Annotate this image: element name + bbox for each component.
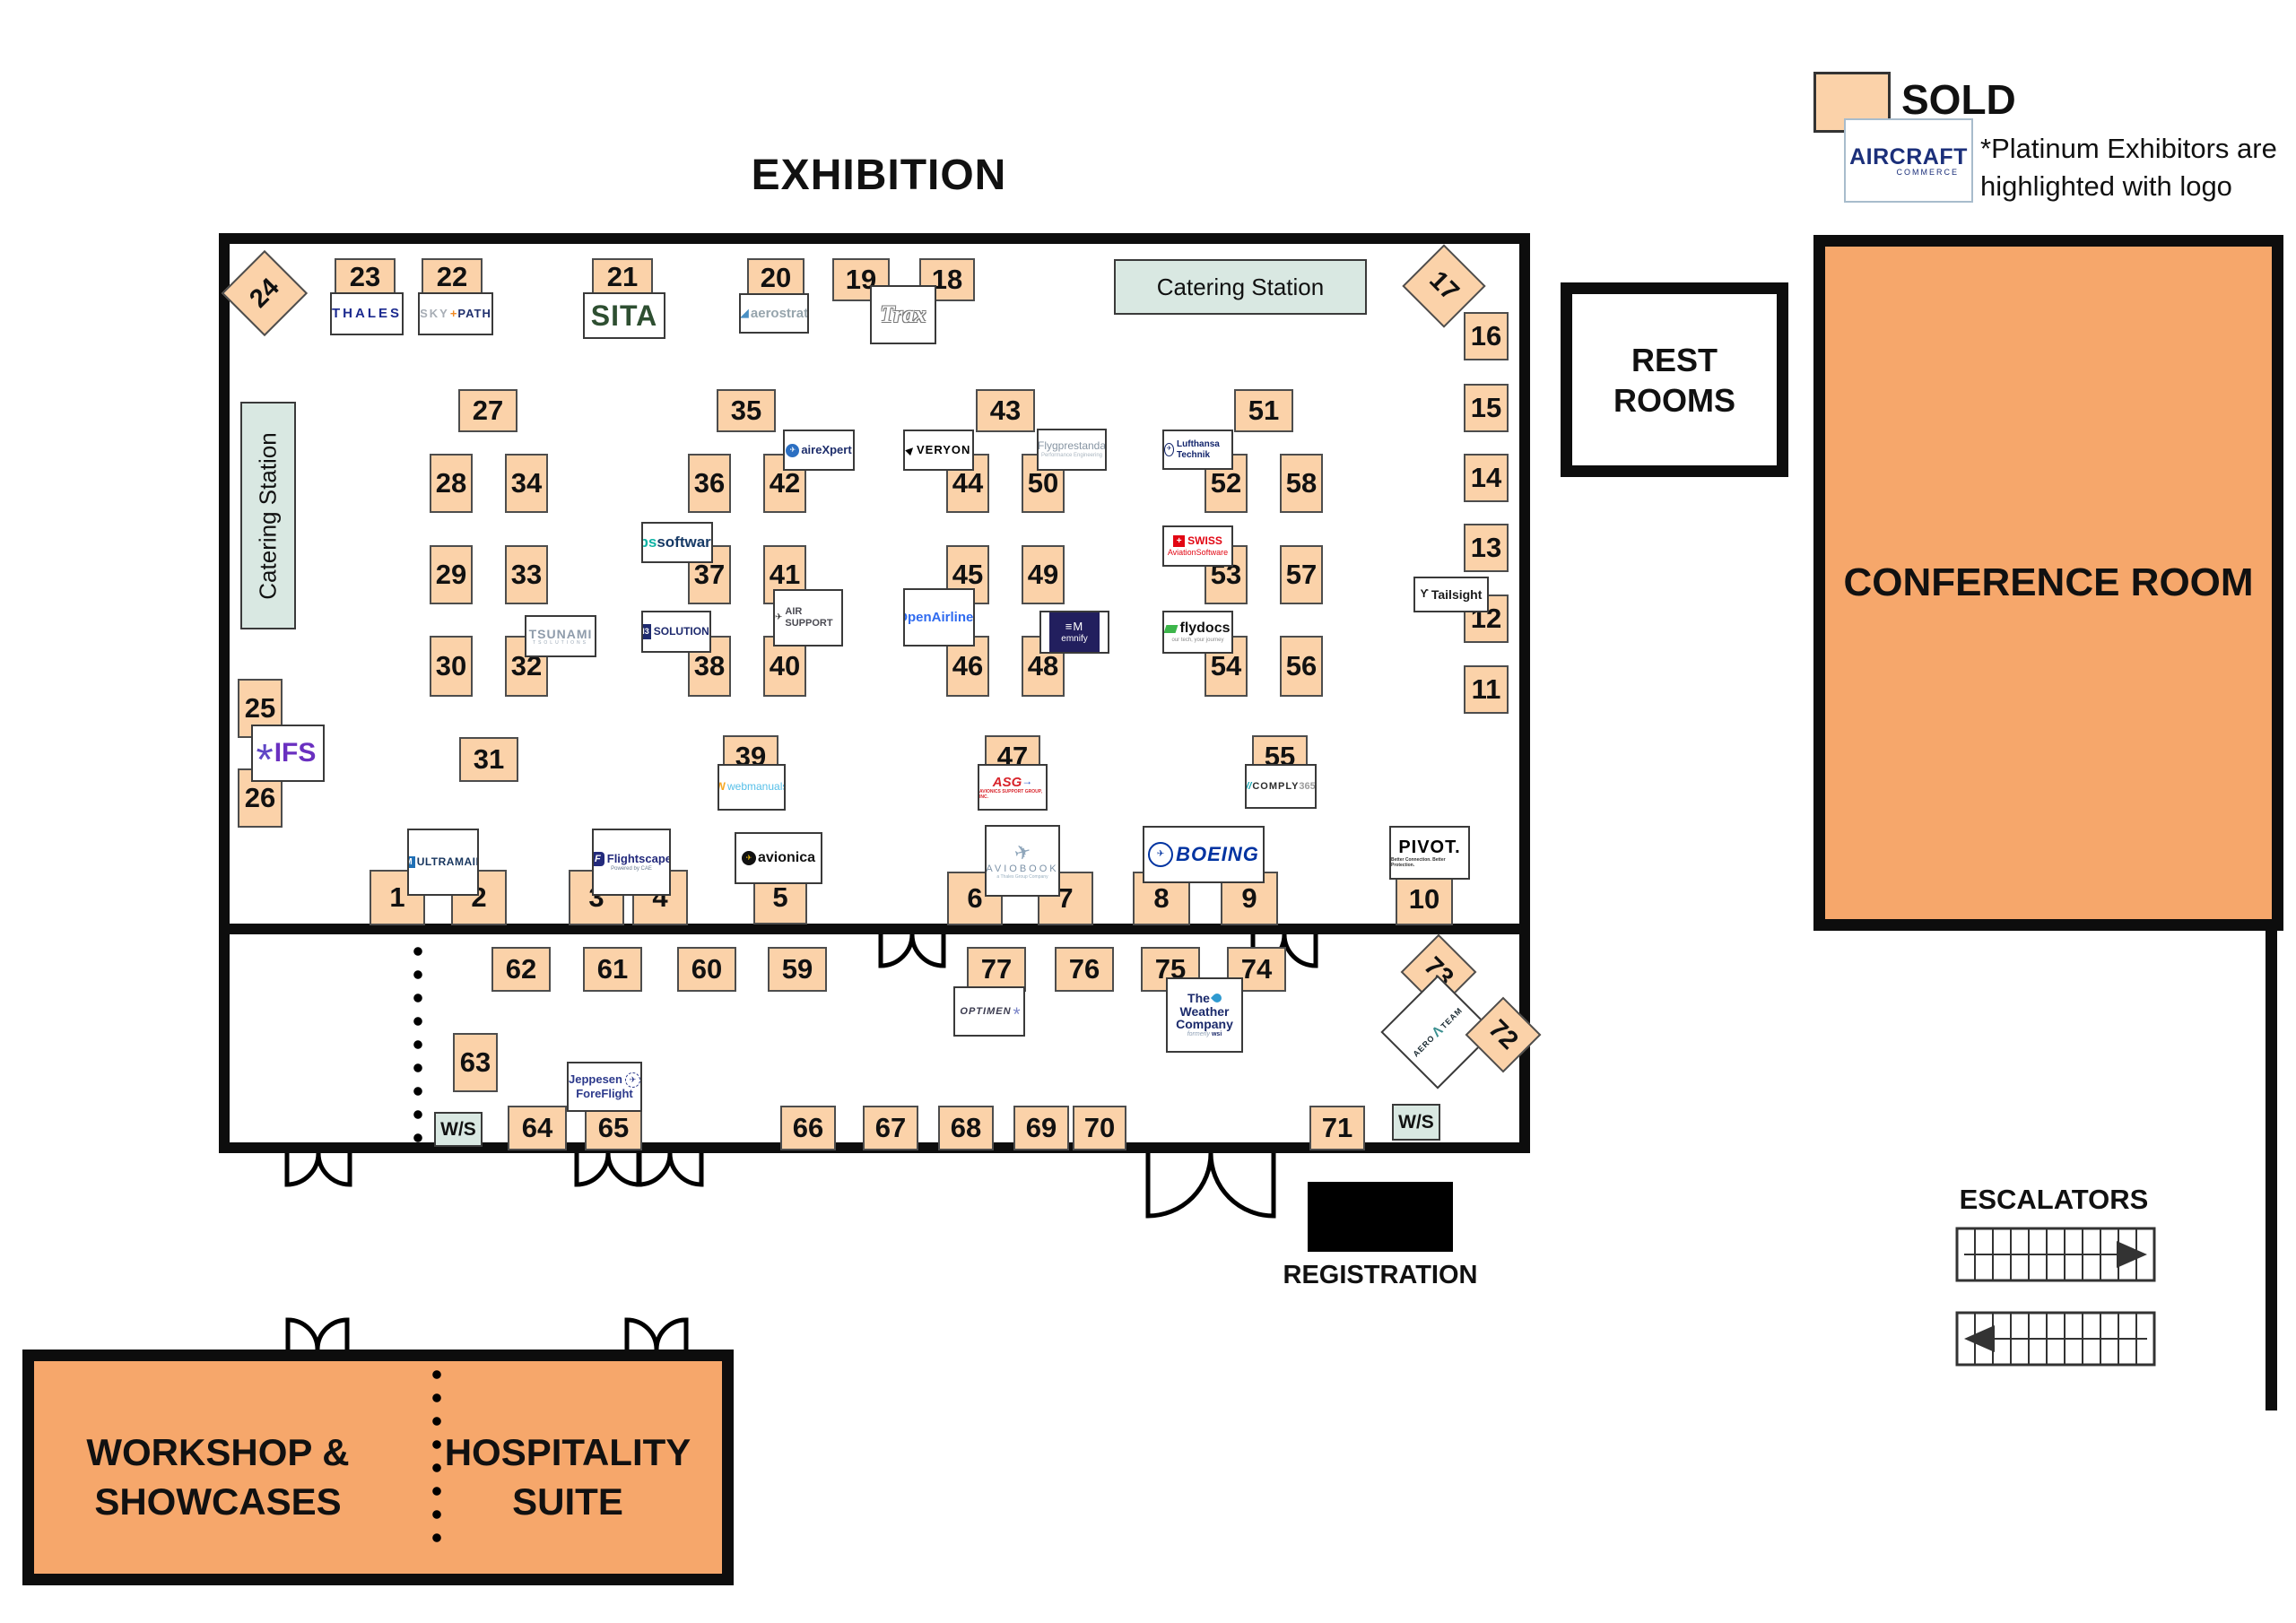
booth-number: 64 <box>522 1112 552 1144</box>
f-icon: F <box>592 852 604 867</box>
booth-71: 71 <box>1309 1106 1365 1150</box>
booth-16: 16 <box>1464 312 1509 360</box>
booth-number: 22 <box>437 261 467 293</box>
logo-text: formerly <box>1187 1031 1210 1038</box>
logo-line: a Thales Group Company <box>996 875 1048 881</box>
logo-line: ✈avionica <box>742 850 815 866</box>
logo-line: our tech, your journey <box>1171 638 1223 644</box>
logo-optimen: OPTIMEN* <box>953 986 1025 1037</box>
logo-text: flydocs <box>1179 621 1230 637</box>
logo-line: //COMPLY365 <box>1246 781 1316 793</box>
booth-number: 74 <box>1241 953 1272 985</box>
logo-aerostrat: ◢aerostrat <box>739 293 809 334</box>
emnify-icon: ≡M <box>1065 621 1083 634</box>
logo-line: AEROΛTEAM <box>1409 1003 1466 1061</box>
logo-tailsight: ϒTailsight <box>1413 577 1489 612</box>
booth-58: 58 <box>1280 454 1323 513</box>
booth-number: 23 <box>350 261 380 293</box>
arrow-icon: → <box>1022 776 1032 788</box>
booth-69: 69 <box>1013 1106 1069 1150</box>
booth-number: 58 <box>1286 467 1317 499</box>
booth-number: 31 <box>474 743 504 776</box>
logo-layer: THALESSKY+PATHSITA◢aerostratTraxϒTailsig… <box>0 0 2296 1623</box>
booth-number: 38 <box>694 650 725 682</box>
logo-web-manuals: Wwebmanuals <box>717 764 786 811</box>
booth-number: 28 <box>436 467 466 499</box>
booth-number: 49 <box>1028 559 1058 591</box>
logo-line: Company <box>1176 1018 1233 1031</box>
booth-56: 56 <box>1280 636 1323 697</box>
logo-tsunami-tsolutions: TSUNAMITSOLUTIONS <box>525 615 596 657</box>
logo-line: OpenAirlines <box>903 610 975 625</box>
booth-number: 67 <box>875 1112 906 1144</box>
booth-number: 42 <box>770 467 800 499</box>
logo-line: ▶VERYON <box>907 444 971 457</box>
logo-line: Powered by CAE <box>611 866 652 872</box>
logo-text: ForeFlight <box>576 1088 633 1101</box>
logo-text: AIR SUPPORT <box>785 606 841 629</box>
booth-number: 56 <box>1286 650 1317 682</box>
logo-text: AVIONICS SUPPORT GROUP, INC. <box>979 790 1046 801</box>
booth-number: 51 <box>1248 395 1279 427</box>
logo-ibs-software: ibssoftware <box>641 522 713 563</box>
logo-line: OPTIMEN* <box>960 1005 1018 1019</box>
logo-line: ✈aireXpert <box>786 444 851 457</box>
raindrop-icon <box>1211 992 1223 1004</box>
booth-65: 65 <box>585 1106 642 1150</box>
booth-number: 66 <box>793 1112 823 1144</box>
slash-icon: // <box>1246 781 1251 793</box>
logo-line: ϒTailsight <box>1421 587 1483 602</box>
booth-number: 40 <box>770 650 800 682</box>
booth-76: 76 <box>1055 947 1114 992</box>
floor-plan: EXHIBITION SOLD AIRCRAFT COMMERCE *Plati… <box>0 0 2296 1623</box>
logo-flightscape: FFlightscapePowered by CAE <box>592 829 671 896</box>
m-icon: M <box>407 856 415 869</box>
logo-line: ✈AIR SUPPORT <box>775 606 841 629</box>
logo-text: COMPLY <box>1252 781 1299 793</box>
booth-35: 35 <box>717 389 776 432</box>
logo-thales: THALES <box>330 292 404 335</box>
booth-23: 23 <box>335 258 396 296</box>
logo-text: Better Connection. Better Protection. <box>1391 858 1468 869</box>
airplane-icon: ✈ <box>786 444 799 457</box>
booth-number: 57 <box>1286 559 1317 591</box>
logo-line: +SWISS <box>1173 535 1222 548</box>
logo-boeing: ✈BOEING <box>1143 826 1265 883</box>
booth-number: 25 <box>245 692 275 725</box>
logo-flygprestanda: FlygprestandaPerformance Engineering <box>1037 429 1107 471</box>
logo-text: 365 <box>1299 781 1315 793</box>
booth-number: 62 <box>506 953 536 985</box>
logo-line: MULTRAMAIN <box>407 856 479 869</box>
booth-number: 60 <box>691 953 722 985</box>
booth-number: 76 <box>1069 953 1100 985</box>
booth-31: 31 <box>459 737 518 782</box>
swiss-flag-icon: + <box>1173 535 1185 547</box>
booth-63: 63 <box>453 1033 498 1092</box>
logo-line: ForeFlight <box>576 1088 633 1101</box>
logo-line: TSOLUTIONS <box>533 641 588 647</box>
booth-number: 27 <box>473 395 503 427</box>
arrow-icon: ▶ <box>903 444 917 457</box>
logo-text: SITA <box>591 299 658 333</box>
logo-text: Performance Engineering <box>1041 453 1102 459</box>
globe-plane-icon: ✈ <box>1148 842 1173 867</box>
logo-airexpert: ✈aireXpert <box>783 430 855 471</box>
booth-33: 33 <box>505 545 548 604</box>
logo-text: ibs <box>641 534 657 551</box>
parallelogram-icon <box>1164 625 1178 633</box>
booth-20: 20 <box>747 258 804 297</box>
booth-number: 6 <box>967 882 982 915</box>
booth-57: 57 <box>1280 545 1323 604</box>
tailsight-icon: ϒ <box>1421 588 1429 601</box>
booth-66: 66 <box>780 1106 836 1150</box>
logo-text: emnify <box>1061 634 1087 645</box>
aircraft-commerce-subtext: COMMERCE <box>1897 168 1960 177</box>
booth-number: 24 <box>244 273 285 314</box>
logo-asg: ASG→AVIONICS SUPPORT GROUP, INC. <box>978 764 1048 811</box>
logo-text: Tailsight <box>1431 587 1483 602</box>
logo-line: ibssoftware <box>641 534 713 551</box>
logo-text: SOLUTIONS <box>654 626 711 638</box>
booth-13: 13 <box>1464 524 1509 572</box>
booth-number: 68 <box>951 1112 981 1144</box>
booth-60: 60 <box>677 947 736 992</box>
booth-number: 46 <box>952 650 983 682</box>
logo-line: ◢aerostrat <box>740 306 808 321</box>
booth-36: 36 <box>688 454 731 513</box>
logo-text: Weather <box>1180 1005 1230 1019</box>
logo-text: Jeppesen <box>569 1073 622 1087</box>
triangle-icon: ◢ <box>740 307 749 320</box>
logo-swiss-aviation-software: +SWISSAviationSoftware <box>1162 525 1233 567</box>
booth-43: 43 <box>976 389 1035 432</box>
aircraft-commerce-logo: AIRCRAFT COMMERCE <box>1844 118 1973 203</box>
booth-70: 70 <box>1073 1106 1126 1150</box>
booth-29: 29 <box>430 545 473 604</box>
logo-text: BOEING <box>1176 843 1259 865</box>
booth-34: 34 <box>505 454 548 513</box>
logo-line: AVIONICS SUPPORT GROUP, INC. <box>979 790 1046 801</box>
booth-30: 30 <box>430 636 473 697</box>
logo-text: wsi <box>1212 1031 1222 1038</box>
logo-ifs: *IFS <box>251 725 325 782</box>
logo-sita: SITA <box>583 292 665 339</box>
booth-number: 37 <box>694 559 725 591</box>
booth-number: 61 <box>597 953 628 985</box>
aircraft-commerce-text: AIRCRAFT <box>1849 144 1968 170</box>
booth-62: 62 <box>491 947 551 992</box>
logo-line: flydocs <box>1165 621 1230 637</box>
workshop-dotted-partition <box>431 1363 442 1553</box>
logo-line: Weather <box>1180 1005 1230 1019</box>
airplane-icon: ✈ <box>742 851 756 865</box>
logo-line: AviationSoftware <box>1168 548 1228 557</box>
logo-text: TSOLUTIONS <box>533 641 588 647</box>
logo-line: SKY+PATH <box>420 308 491 321</box>
logo-text: AviationSoftware <box>1168 548 1228 557</box>
logo-text: Flygprestanda <box>1038 440 1106 453</box>
airplane-icon: ✈ <box>1164 443 1174 456</box>
logo-text: SWISS <box>1187 535 1222 548</box>
logo-text: AERO <box>1411 1033 1437 1059</box>
logo-line: Performance Engineering <box>1041 453 1102 459</box>
logo-line: THALES <box>332 306 402 321</box>
booth-number: 41 <box>770 559 800 591</box>
booth-number: 59 <box>782 953 813 985</box>
booth-14: 14 <box>1464 454 1509 502</box>
logo-text: Powered by CAE <box>611 866 652 872</box>
booth-49: 49 <box>1022 545 1065 604</box>
logo-aviobook: ✈AVIOBOOKa Thales Group Company <box>985 825 1060 897</box>
booth-number: 11 <box>1472 673 1501 706</box>
logo-text: THALES <box>332 306 402 321</box>
logo-line: Trax <box>880 301 926 328</box>
booth-number: 14 <box>1471 462 1501 494</box>
booth-number: 54 <box>1211 650 1241 682</box>
booth-number: 35 <box>731 395 761 427</box>
booth-51: 51 <box>1234 389 1293 432</box>
booth-number: 34 <box>511 467 542 499</box>
booth-27: 27 <box>458 389 517 432</box>
logo-text: Company <box>1176 1018 1233 1031</box>
booth-28: 28 <box>430 454 473 513</box>
booth-number: 20 <box>761 262 791 294</box>
booth-number: 33 <box>511 559 542 591</box>
booth-number: 16 <box>1471 320 1501 352</box>
booth-number: 8 <box>1153 882 1169 915</box>
logo-line: ≡Memnify <box>1049 612 1100 652</box>
logo-text: software <box>657 534 713 551</box>
logo-text: Trax <box>880 301 926 328</box>
logo-text: PATH <box>457 308 491 321</box>
plus-icon: + <box>450 308 457 321</box>
logo-line: TSUNAMI <box>529 627 593 641</box>
logo-veryon: ▶VERYON <box>903 430 974 471</box>
logo-text: aireXpert <box>801 444 851 457</box>
booth-number: 52 <box>1211 467 1241 499</box>
logo-line: Wwebmanuals <box>717 781 786 794</box>
logo-line: The <box>1187 992 1222 1005</box>
booth-61: 61 <box>583 947 642 992</box>
booth-64: 64 <box>508 1106 567 1150</box>
paper-plane-icon: ✈ <box>1012 839 1033 865</box>
logo-text: IFS <box>274 738 317 769</box>
logo-avionica: ✈avionica <box>735 832 822 884</box>
booth-number: 72 <box>1483 1014 1524 1055</box>
booth-68: 68 <box>938 1106 994 1150</box>
logo-line: PIVOT. <box>1398 838 1460 858</box>
starburst-icon: * <box>256 736 273 782</box>
logo-trax: Trax <box>870 285 936 344</box>
booth-number: 48 <box>1028 650 1058 682</box>
logo-flydocs: flydocsour tech, your journey <box>1162 611 1233 654</box>
booth-number: 65 <box>598 1112 629 1144</box>
logo-air-support: ✈AIR SUPPORT <box>773 589 843 647</box>
logo-line: Jeppesen✈ <box>569 1072 640 1088</box>
logo-emnify: ≡Memnify <box>1039 611 1109 654</box>
logo-the-weather-company: TheWeatherCompanyformerlywsi <box>1166 977 1243 1053</box>
logo-line: ✈ <box>1014 841 1031 864</box>
starburst-icon: * <box>1013 1004 1020 1026</box>
logo-pivot: PIVOT.Better Connection. Better Protecti… <box>1389 826 1470 880</box>
booth-number: 50 <box>1028 467 1058 499</box>
logo-openairlines: OpenAirlines <box>903 588 975 647</box>
booth-number: 63 <box>460 1046 491 1079</box>
logo-ultramain: MULTRAMAIN <box>407 829 479 896</box>
booth-number: 5 <box>772 881 787 914</box>
booth-number: 29 <box>436 559 466 591</box>
cube-icon: M3 <box>641 624 651 638</box>
logo-line: *IFS <box>260 738 317 769</box>
booth-number: 69 <box>1026 1112 1057 1144</box>
logo-skypath: SKY+PATH <box>418 292 493 335</box>
logo-line: ✈BOEING <box>1148 842 1259 867</box>
logo-text: SKY <box>420 308 449 321</box>
logo-text: avionica <box>758 850 815 866</box>
logo-line: M3SOLUTIONS <box>641 624 711 638</box>
logo-text: ASG <box>993 775 1022 790</box>
booth-number: 17 <box>1423 265 1465 307</box>
booth-15: 15 <box>1464 384 1509 432</box>
booth-number: 43 <box>990 395 1021 427</box>
logo-line: ✈Lufthansa Technik <box>1164 439 1231 460</box>
logo-jeppesen-foreflight: Jeppesen✈ForeFlight <box>567 1062 642 1112</box>
logo-text: Lufthansa Technik <box>1177 439 1231 460</box>
logo-line: Better Connection. Better Protection. <box>1391 858 1468 869</box>
logo-text: ULTRAMAIN <box>417 856 479 869</box>
logo-text: our tech, your journey <box>1171 638 1223 644</box>
logo-line: SITA <box>591 299 658 333</box>
logo-text: The <box>1187 992 1210 1005</box>
booth-number: 71 <box>1322 1112 1352 1144</box>
logo-text: PIVOT. <box>1398 838 1460 858</box>
logo-text: a Thales Group Company <box>996 875 1048 881</box>
compass-icon: ✈ <box>625 1072 640 1088</box>
logo-text: OPTIMEN <box>960 1006 1011 1018</box>
booth-67: 67 <box>863 1106 918 1150</box>
booth-number: 44 <box>952 467 983 499</box>
booth-number: 21 <box>607 261 638 293</box>
booth-21: 21 <box>592 258 653 296</box>
logo-m3-solutions: M3SOLUTIONS <box>641 611 711 653</box>
logo-text: TSUNAMI <box>529 627 593 641</box>
booth-number: 45 <box>952 559 983 591</box>
logo-line: ASG→ <box>993 775 1033 790</box>
booth-59: 59 <box>768 947 827 992</box>
booth-number: 1 <box>389 881 404 914</box>
logo-text: TEAM <box>1439 1005 1464 1030</box>
airplane-icon: ✈ <box>775 612 782 623</box>
logo-line: formerlywsi <box>1187 1031 1222 1038</box>
booth-number: 70 <box>1084 1112 1115 1144</box>
w-icon: W <box>717 781 726 794</box>
booth-77: 77 <box>967 947 1026 992</box>
logo-lufthansa-technik: ✈Lufthansa Technik <box>1162 430 1233 470</box>
booth-number: 26 <box>245 782 275 814</box>
logo-text: webmanuals <box>727 781 786 794</box>
booth-10: 10 <box>1396 873 1453 925</box>
booth-number: 9 <box>1241 882 1257 915</box>
booth-number: 36 <box>694 467 725 499</box>
logo-text: aerostrat <box>751 306 808 321</box>
logo-text: OpenAirlines <box>903 610 975 625</box>
logo-line: FFlightscape <box>592 852 671 867</box>
booth-11: 11 <box>1464 665 1509 714</box>
logo-text: VERYON <box>917 444 970 457</box>
booth-number: 30 <box>436 650 466 682</box>
logo-line: Flygprestanda <box>1038 440 1106 453</box>
booth-22: 22 <box>422 258 483 296</box>
booth-number: 13 <box>1471 532 1501 564</box>
booth-number: 77 <box>981 953 1012 985</box>
booth-number: 10 <box>1409 883 1439 916</box>
logo-text: Flightscape <box>607 853 671 866</box>
logo-comply365: //COMPLY365 <box>1245 764 1317 809</box>
booth-number: 15 <box>1471 392 1501 424</box>
